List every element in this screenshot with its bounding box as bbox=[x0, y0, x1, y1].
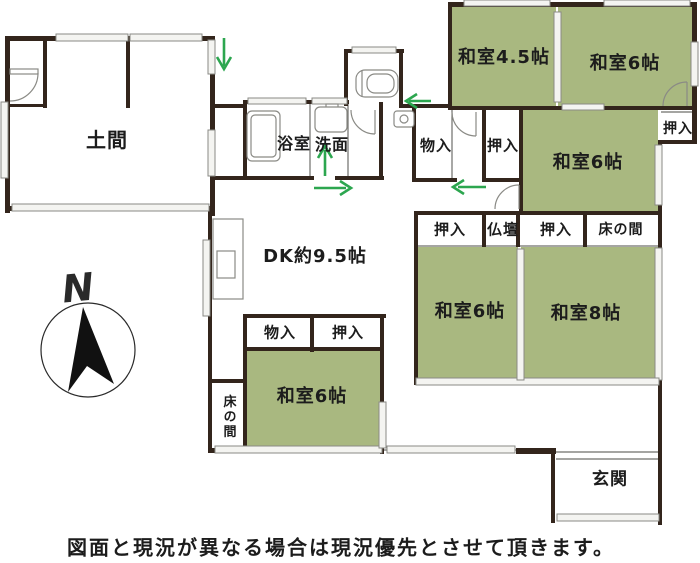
room-label-doma: 土間 bbox=[86, 130, 128, 150]
disclaimer-caption: 図面と現況が異なる場合は現況優先とさせて頂きます。 bbox=[67, 532, 615, 561]
hand-sink-fixture bbox=[394, 111, 414, 127]
room-label-washitsu-4-5: 和室4.5帖 bbox=[458, 49, 550, 67]
hall-arrow-left-icon bbox=[453, 180, 486, 194]
room-label-washitsu-6-sw: 和室6帖 bbox=[277, 388, 348, 406]
storage-label-oshiire-n: 押入 bbox=[487, 139, 519, 154]
storage-label-tokonoma-e: 床の間 bbox=[599, 223, 644, 237]
room-label-bathroom: 浴室 bbox=[277, 136, 311, 152]
storage-label-monoire-n: 物入 bbox=[420, 139, 452, 154]
room-label-dk: DK約9.5帖 bbox=[263, 248, 367, 266]
washbasin-fixture bbox=[315, 104, 347, 132]
storage-label-monoire-sw: 物入 bbox=[264, 326, 296, 341]
room-label-washitsu-6-ne: 和室6帖 bbox=[590, 55, 661, 73]
kitchen-counter-fixture bbox=[213, 219, 243, 299]
room-label-washitsu-6-c: 和室6帖 bbox=[435, 303, 506, 321]
compass-icon bbox=[41, 303, 135, 397]
storage-label-oshiire-e1: 押入 bbox=[434, 223, 466, 238]
compass-north-label: N bbox=[60, 264, 96, 311]
room-label-washroom: 洗面 bbox=[315, 137, 349, 153]
storage-label-oshiire-ne: 押入 bbox=[663, 122, 693, 136]
entry-arrow-down-icon bbox=[217, 38, 231, 69]
dk-arrow-right-icon bbox=[314, 181, 351, 195]
room-label-washitsu-6-e: 和室6帖 bbox=[553, 154, 624, 172]
toilet-fixture bbox=[356, 70, 398, 97]
bathtub-fixture bbox=[247, 111, 280, 161]
room-label-genkan: 玄関 bbox=[592, 472, 628, 489]
room-label-washitsu-8: 和室8帖 bbox=[551, 305, 622, 323]
floor-plan: 土間 浴室 洗面 DK約9.5帖 和室4.5帖 和室6帖 和室6帖 和室6帖 和… bbox=[0, 0, 700, 563]
storage-label-oshiire-sw: 押入 bbox=[332, 326, 364, 341]
storage-label-oshiire-e2: 押入 bbox=[540, 223, 572, 238]
storage-label-butsudan: 仏壇 bbox=[487, 223, 519, 238]
storage-label-tokonoma-sw: 床の間 bbox=[222, 395, 235, 440]
